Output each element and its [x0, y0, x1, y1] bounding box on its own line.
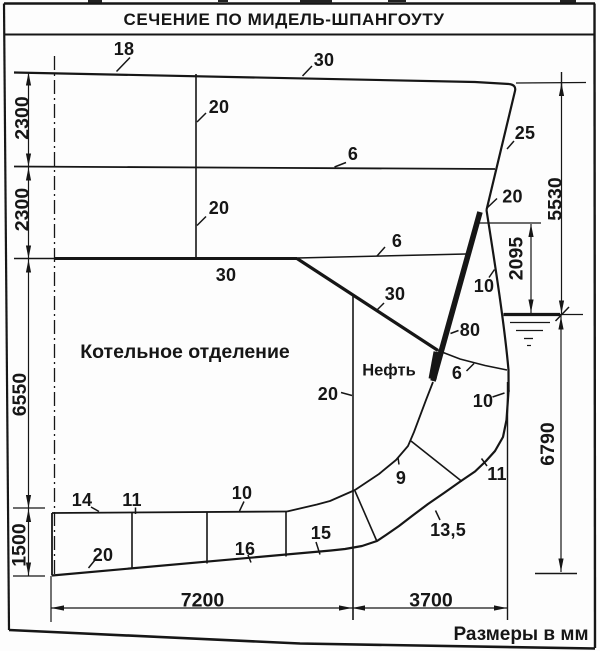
svg-text:Размеры в мм: Размеры в мм — [454, 624, 589, 645]
svg-text:5530: 5530 — [545, 177, 567, 221]
svg-text:80: 80 — [460, 320, 480, 340]
svg-text:10: 10 — [473, 391, 493, 411]
svg-text:15: 15 — [311, 523, 331, 543]
svg-text:25: 25 — [515, 123, 535, 143]
svg-text:10: 10 — [474, 276, 494, 296]
svg-text:20: 20 — [502, 187, 522, 207]
svg-text:3700: 3700 — [409, 590, 453, 612]
svg-text:6: 6 — [392, 231, 402, 251]
svg-text:6550: 6550 — [9, 373, 31, 417]
svg-text:13,5: 13,5 — [430, 520, 466, 540]
svg-text:6790: 6790 — [537, 422, 559, 466]
svg-text:6: 6 — [452, 363, 462, 383]
svg-text:30: 30 — [216, 265, 236, 285]
svg-text:30: 30 — [314, 50, 334, 70]
svg-text:7200: 7200 — [181, 590, 225, 612]
svg-text:9: 9 — [396, 468, 406, 488]
svg-text:20: 20 — [209, 97, 229, 117]
svg-text:16: 16 — [235, 539, 255, 559]
svg-text:6: 6 — [348, 144, 358, 164]
svg-text:Котельное отделение: Котельное отделение — [80, 341, 290, 363]
svg-text:20: 20 — [318, 384, 338, 404]
svg-text:2095: 2095 — [506, 237, 528, 281]
svg-text:11: 11 — [487, 464, 506, 484]
svg-text:10: 10 — [232, 483, 252, 503]
svg-text:Нефть: Нефть — [362, 362, 416, 380]
svg-text:30: 30 — [385, 284, 405, 304]
svg-text:11: 11 — [122, 490, 141, 510]
svg-text:18: 18 — [114, 39, 134, 59]
svg-text:СЕЧЕНИЕ ПО МИДЕЛЬ-ШПАНГОУТУ: СЕЧЕНИЕ ПО МИДЕЛЬ-ШПАНГОУТУ — [123, 10, 444, 29]
svg-text:20: 20 — [93, 545, 113, 565]
svg-text:1500: 1500 — [9, 523, 31, 567]
svg-text:14: 14 — [72, 490, 92, 510]
svg-text:2300: 2300 — [12, 188, 34, 232]
svg-text:2300: 2300 — [12, 96, 34, 140]
svg-text:20: 20 — [209, 198, 229, 218]
